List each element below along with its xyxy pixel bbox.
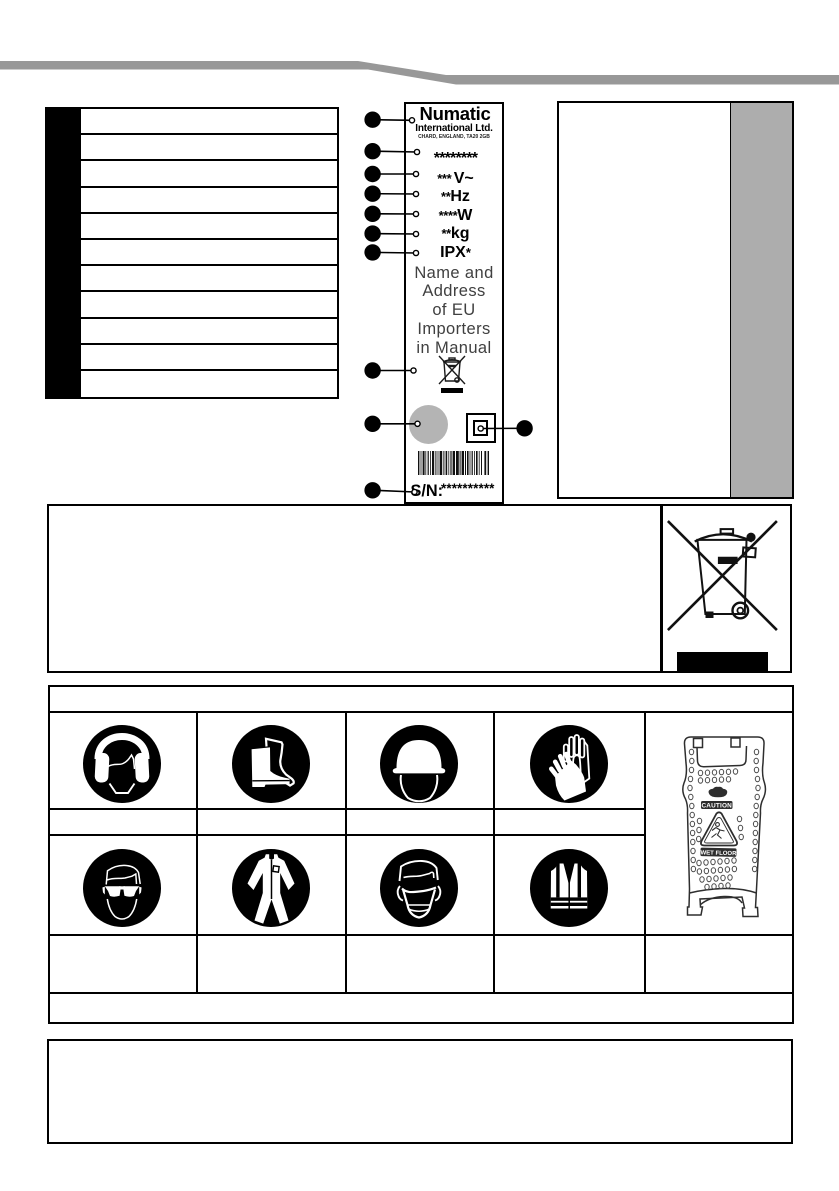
svg-text:CAUTION: CAUTION	[701, 803, 732, 810]
svg-text:WET FLOOR: WET FLOOR	[700, 850, 737, 857]
